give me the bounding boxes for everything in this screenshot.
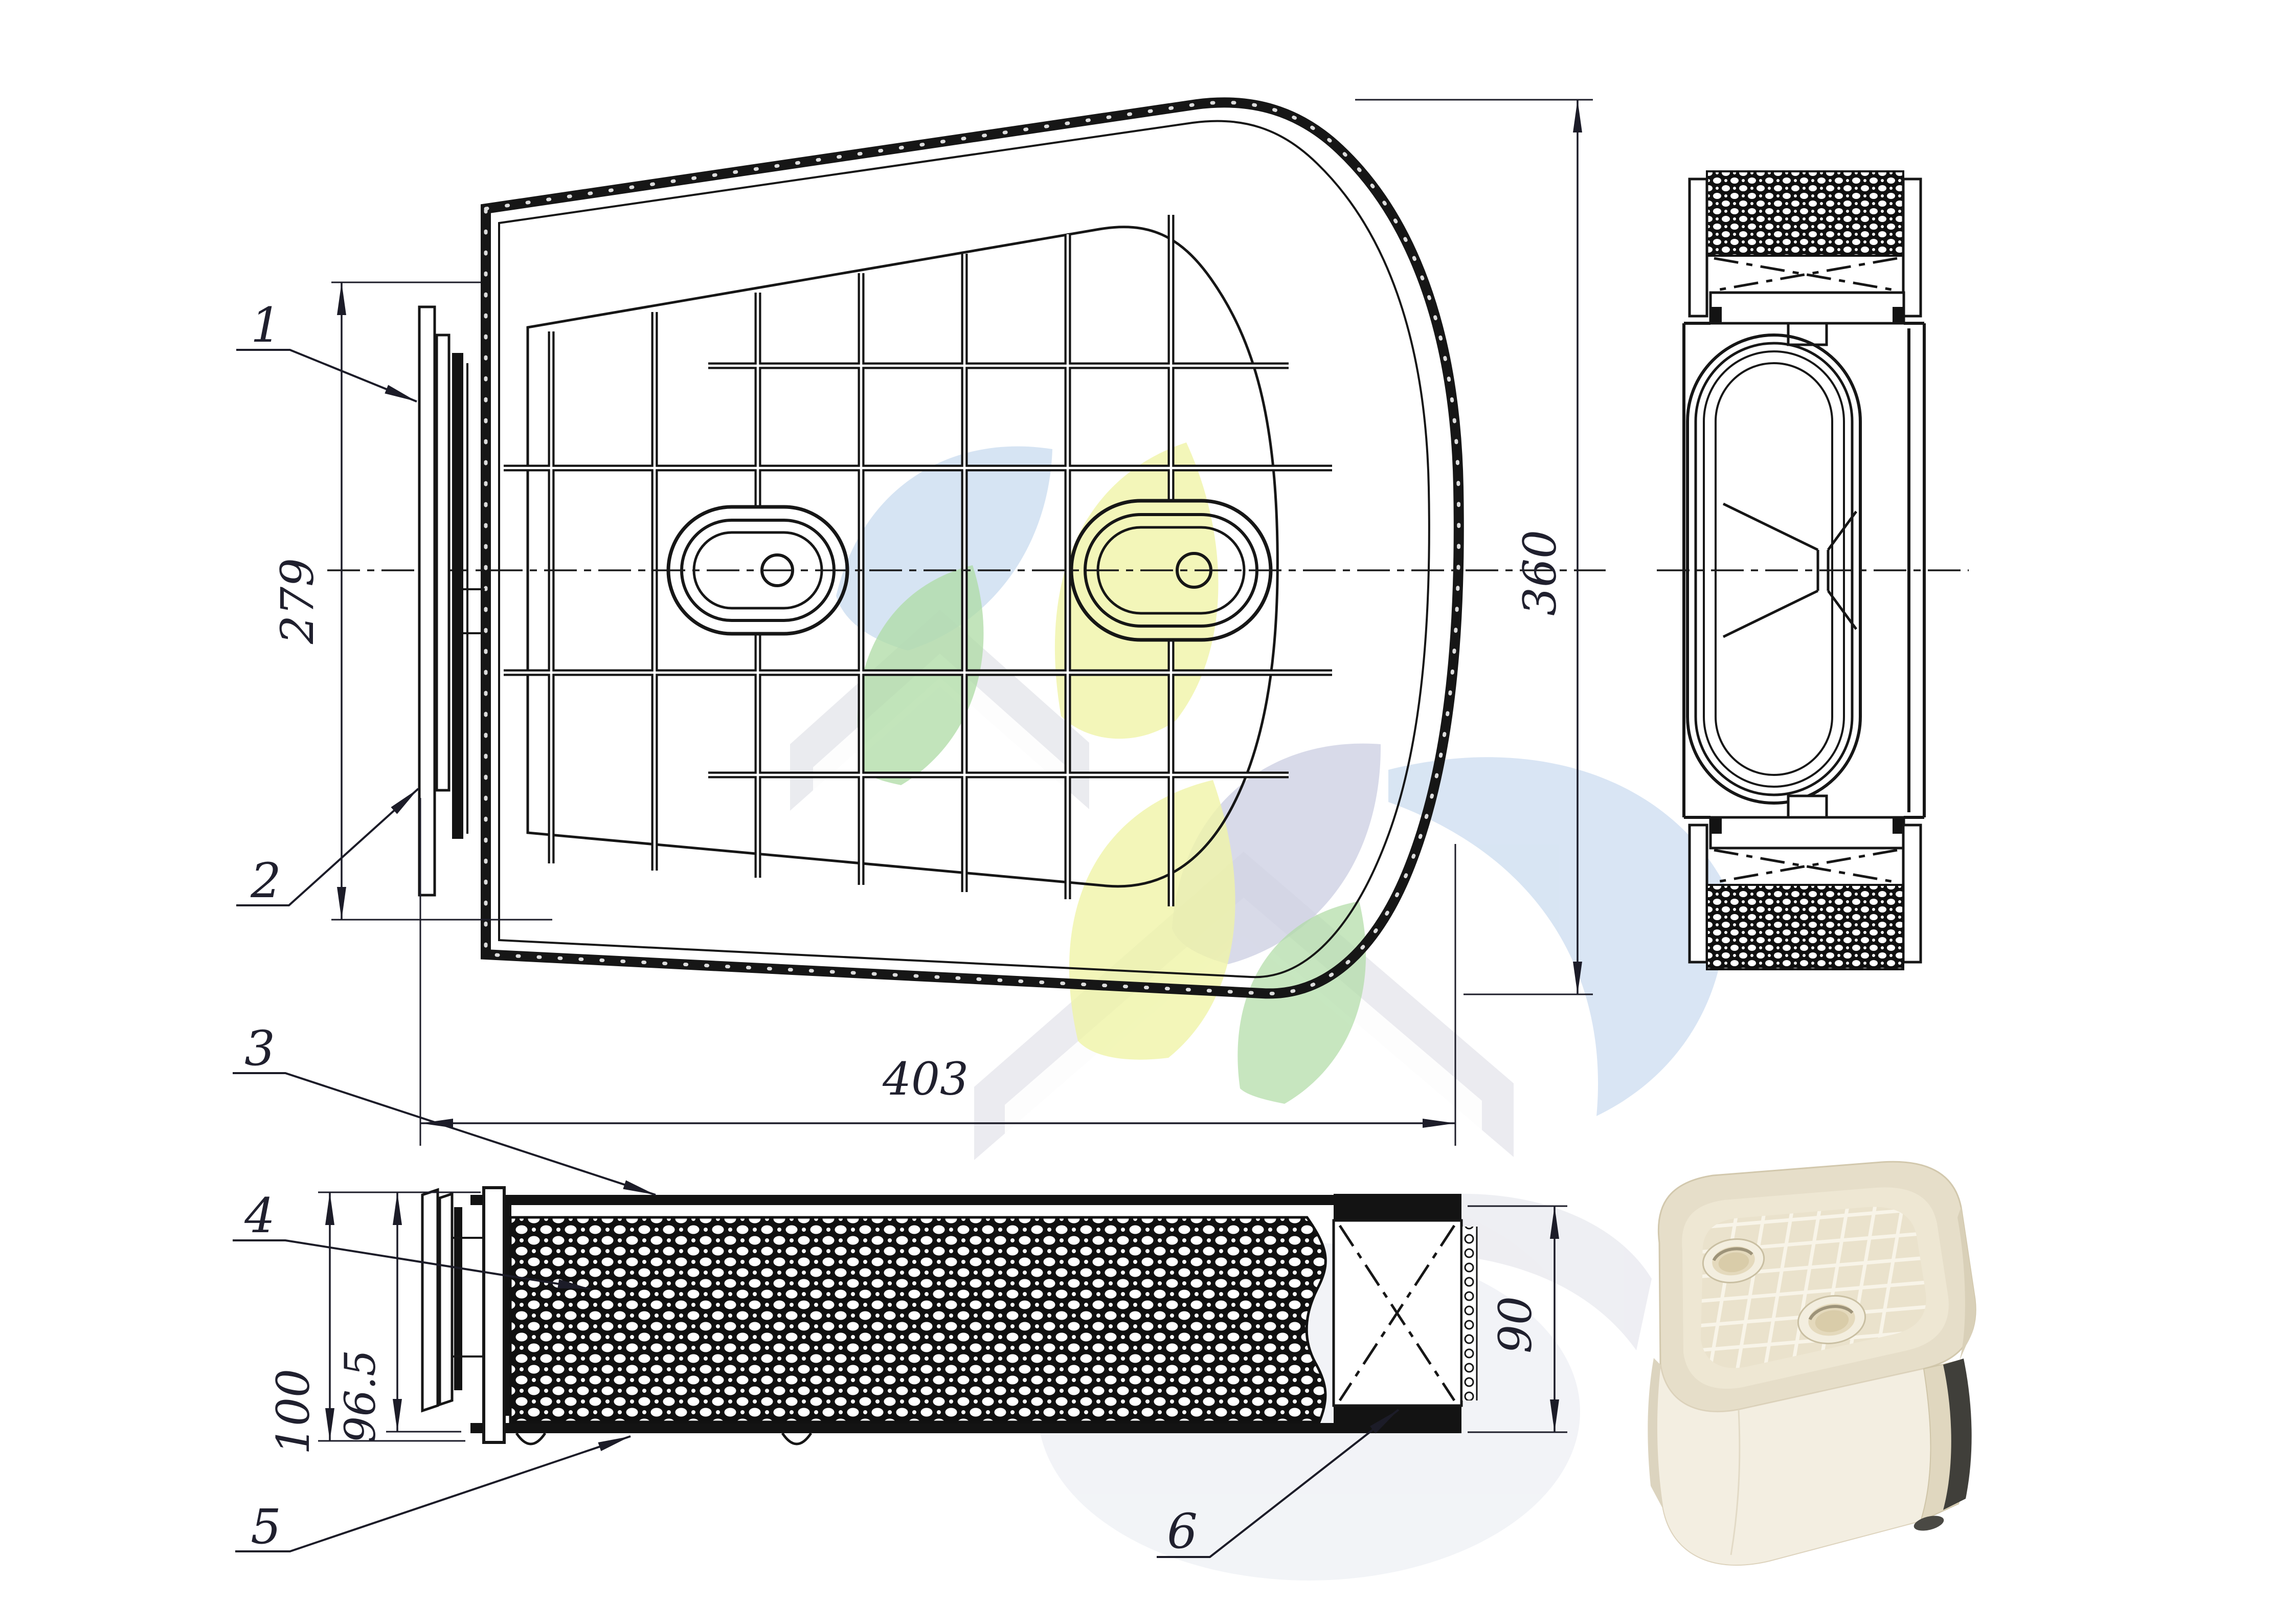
dim-text-96-5: 96.5	[336, 1350, 385, 1443]
flange-stack	[419, 307, 485, 895]
foam-x-top	[1714, 258, 1897, 291]
top-rail	[470, 1195, 1461, 1205]
perforated-screen	[510, 1217, 1325, 1422]
watermark-yellow-petal-lower	[1069, 780, 1235, 1060]
frame-band-bottom	[1710, 817, 1904, 848]
callout-1: 1	[236, 298, 417, 402]
watermark-yellow-petal-upper	[1055, 442, 1219, 739]
dim-text-100: 100	[267, 1369, 320, 1455]
dim-text-90: 90	[1489, 1296, 1542, 1353]
dim-text-403: 403	[882, 1053, 969, 1105]
main-top-view	[327, 102, 1606, 993]
mount-feet	[516, 1433, 811, 1444]
dimension-flange-height: 279	[271, 282, 552, 920]
callout-6-label: 6	[1167, 1504, 1198, 1560]
callout-3: 3	[233, 1021, 656, 1195]
left-end-plate	[484, 1188, 504, 1442]
side-end-view	[1657, 171, 1969, 969]
callout-2-label: 2	[250, 853, 281, 909]
callout-1-label: 1	[251, 298, 281, 353]
frame-band-top	[1710, 293, 1904, 323]
seal-rings	[1687, 335, 1860, 803]
callout-3-label: 3	[244, 1021, 275, 1077]
dim-text-279: 279	[271, 558, 324, 644]
media-bottom	[1707, 885, 1903, 969]
flange-stack-bottom-view	[422, 1190, 484, 1411]
frame-tab-bottom	[1788, 796, 1827, 817]
foam-x-bottom	[1714, 850, 1897, 882]
callout-5-label: 5	[251, 1499, 281, 1555]
media-top-strip-right	[1903, 179, 1921, 316]
seal-bead-strip	[1462, 1227, 1476, 1400]
media-bottom-strip-right	[1903, 825, 1921, 962]
drawing-sheet: 279 360 403 100 96.5 90 1 2 3 4	[0, 0, 2296, 1624]
dim-text-360: 360	[1514, 530, 1566, 616]
product-photo	[1648, 1162, 1975, 1565]
callout-4-label: 4	[244, 1188, 275, 1244]
bottom-rail	[470, 1423, 1461, 1433]
media-top	[1707, 171, 1903, 256]
media-bottom-strip-left	[1690, 825, 1707, 962]
outlet-end-cap	[1334, 1194, 1477, 1433]
media-top-strip-left	[1690, 179, 1707, 316]
callout-2: 2	[236, 789, 418, 909]
